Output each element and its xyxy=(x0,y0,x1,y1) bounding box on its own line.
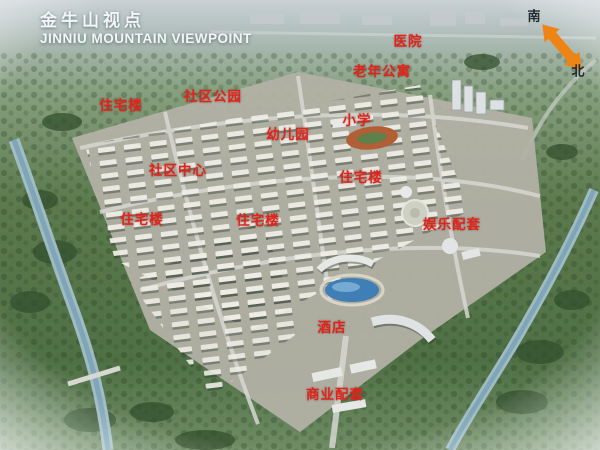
map-label: 老年公寓 xyxy=(353,60,411,80)
page-title-cn: 金牛山视点 xyxy=(40,10,252,31)
map-label: 娱乐配套 xyxy=(423,213,481,233)
compass-north-label: 北 xyxy=(571,61,584,80)
title-block: 金牛山视点 JINNIU MOUNTAIN VIEWPOINT xyxy=(40,10,252,48)
haze-vignette xyxy=(0,0,600,450)
page-title-en: JINNIU MOUNTAIN VIEWPOINT xyxy=(40,31,252,48)
map-label: 幼儿园 xyxy=(266,123,310,143)
map-label: 住宅楼 xyxy=(99,94,143,114)
map-label: 小学 xyxy=(343,109,372,129)
aerial-rendering xyxy=(0,0,600,450)
map-label: 住宅楼 xyxy=(120,208,164,228)
map-label: 酒店 xyxy=(318,316,347,336)
map-label: 医院 xyxy=(394,30,423,50)
map-label: 住宅楼 xyxy=(339,166,383,186)
compass-south-label: 南 xyxy=(527,6,540,25)
aerial-viewpoint-screenshot: 金牛山视点 JINNIU MOUNTAIN VIEWPOINT 南 北 医院老年… xyxy=(0,0,600,450)
map-label: 商业配套 xyxy=(306,383,364,403)
map-label: 住宅楼 xyxy=(236,209,280,229)
map-label: 社区公园 xyxy=(184,85,242,105)
map-label: 社区中心 xyxy=(149,159,207,179)
